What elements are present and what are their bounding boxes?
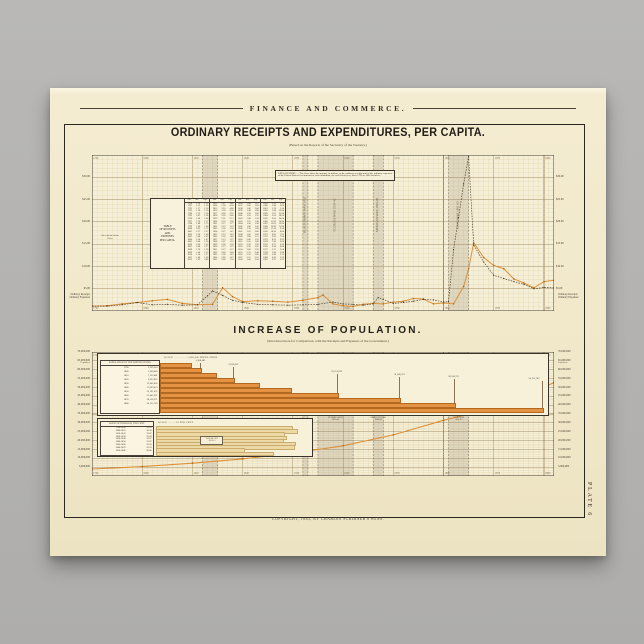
- leader-line: [200, 363, 201, 368]
- tick-label: 65,000,000Population: [558, 359, 604, 365]
- year-tick-label: 1810: [193, 157, 199, 160]
- ratio-table: RATIO OF INCREASE, PER CENT. 1790-180035…: [100, 421, 154, 456]
- population-table: POPULATION OF THE UNITED STATES. 17903,9…: [100, 360, 160, 414]
- year-tick-label: 1860: [445, 472, 451, 475]
- tick-label: 30,000,000: [558, 421, 604, 424]
- tick-label: $20.00: [556, 220, 596, 223]
- tick-label: 45,000,000: [558, 394, 604, 397]
- year-tick-label: 1820: [244, 157, 250, 160]
- leader-line: [399, 377, 400, 398]
- table-group: YearRec.Exp.18363.601.6718372.601.831838…: [235, 199, 260, 268]
- per-capita-y-axis-right: $30.00$25.00$20.00$15.00$10.00$5.00: [556, 155, 596, 311]
- table-group: YearRec.Exp.18131.473.4018141.504.501815…: [209, 199, 234, 268]
- page-title: ORDINARY RECEIPTS AND EXPENDITURES, PER …: [67, 127, 590, 139]
- year-tick-label: 1850: [394, 157, 400, 160]
- bar-scale-note: SCALE ·········· = 1,000,000 POPULATION.: [164, 356, 218, 359]
- leader-line: [542, 381, 543, 408]
- tick-label: $20.00: [54, 220, 90, 223]
- year-tick-label: 1800: [143, 157, 149, 160]
- tick-label: 10,000,000: [558, 456, 604, 459]
- tick-label: 40,000,000: [558, 403, 604, 406]
- tick-label: 70,000,000: [558, 350, 604, 353]
- tick-label: 10,000,000: [52, 456, 90, 459]
- year-tick-label: 1870: [495, 307, 501, 310]
- tick-label: 65,000,000Population: [52, 359, 90, 365]
- tick-label: 5,000,000: [52, 465, 90, 468]
- tick-label: $10.00: [556, 265, 596, 268]
- series-caption-expenses: Ordinary Expenses: [52, 296, 90, 299]
- tick-label: $5.00: [556, 287, 596, 290]
- year-tick-label: 1800: [143, 307, 149, 310]
- plate-number: PLATE 6: [586, 482, 592, 522]
- war-band-label: BLACK HAWK WAR 1832: [302, 196, 306, 233]
- tick-label: 50,000,000: [52, 386, 90, 389]
- tick-label: $15.00: [54, 242, 90, 245]
- poster-art: FINANCE AND COMMERCE. ORDINARY RECEIPTS …: [50, 88, 606, 556]
- population-y-axis-left: 70,000,00065,000,000Population60,000,000…: [52, 352, 90, 482]
- tick-label: $30.00: [556, 175, 596, 178]
- bar-value-label: 50,155,783: [521, 378, 547, 381]
- section-title: INCREASE OF POPULATION.: [50, 325, 606, 336]
- year-tick-label: 1800: [143, 472, 149, 475]
- year-tick-label: 1880: [545, 157, 551, 160]
- table-row: 188050,155,783: [101, 402, 159, 406]
- tick-label: $15.00: [556, 242, 596, 245]
- war-band-label: MEXICAN WAR 1846-48: [375, 198, 379, 233]
- indian-war-note: War with the Indian Tribes: [99, 235, 121, 240]
- tick-label: 55,000,000: [52, 377, 90, 380]
- running-head-rule-right: [413, 108, 576, 109]
- series-caption-expenses: Ordinary Expenses: [558, 296, 602, 299]
- tick-label: $30.00: [54, 175, 90, 178]
- tick-label: 50,000,000: [558, 386, 604, 389]
- tick-label: 25,000,000: [558, 430, 604, 433]
- year-tick-label: 1840: [344, 157, 350, 160]
- ratio-scale-note: SCALE ····· = 10 PER CENT.: [158, 421, 194, 424]
- table-row: 1870-188030.08: [101, 450, 153, 453]
- backdrop: FINANCE AND COMMERCE. ORDINARY RECEIPTS …: [0, 0, 644, 644]
- series-caption-left: Ordinary Receipts Ordinary Expenses: [52, 293, 90, 300]
- tick-label: 35,000,000: [52, 412, 90, 415]
- year-tick-label: 1880: [545, 307, 551, 310]
- tick-label: 60,000,000: [52, 368, 90, 371]
- war-band: [449, 155, 469, 311]
- year-tick-label: 1830: [294, 307, 300, 310]
- tick-label: 5,000,000: [558, 465, 604, 468]
- tick-label: 30,000,000: [52, 421, 90, 424]
- table-group: YearRec.Exp.18591.702.2518601.802.001861…: [260, 199, 285, 268]
- year-tick-label: 1810: [193, 307, 199, 310]
- leader-line: [454, 379, 455, 403]
- population-bar: [160, 408, 544, 413]
- year-tick-label: 1840: [344, 307, 350, 310]
- tick-label: $25.00: [556, 198, 596, 201]
- year-tick-label: 1860: [445, 307, 451, 310]
- tick-label: 40,000,000: [52, 403, 90, 406]
- tick-label: 70,000,000: [52, 350, 90, 353]
- table-group: YearRec.Exp.17901.101.1017911.131.101792…: [185, 199, 209, 268]
- tick-label: $5.00: [54, 287, 90, 290]
- year-tick-label: 1820: [244, 472, 250, 475]
- table-row: 18581.602.50: [236, 259, 260, 262]
- page-subtitle: (Based on the Reports of the Secretary o…: [50, 143, 606, 147]
- year-tick-label: 1790: [93, 472, 99, 475]
- tick-label: 20,000,000: [558, 439, 604, 442]
- running-head-text: FINANCE AND COMMERCE.: [250, 104, 406, 113]
- year-tick-label: 1870: [495, 472, 501, 475]
- year-tick-label: 1880: [545, 472, 551, 475]
- ratio-bar: [156, 452, 274, 456]
- running-head: FINANCE AND COMMERCE.: [80, 103, 576, 114]
- table-row: 18353.001.50: [210, 259, 234, 262]
- section-subtitle: (Introduced here for Comparison, with th…: [50, 339, 606, 343]
- tick-label: 45,000,000: [52, 394, 90, 397]
- tick-label: 55,000,000: [558, 377, 604, 380]
- series-caption-right: Ordinary Receipts Ordinary Expenses: [558, 293, 602, 300]
- war-band-label: FLORIDA WAR 1835-42: [333, 198, 337, 231]
- tick-label: 15,000,000: [52, 448, 90, 451]
- tick-label: 60,000,000: [558, 368, 604, 371]
- year-tick-label: 1820: [244, 307, 250, 310]
- ratio-table-rows: 1790-180035.101800-181036.381810-182033.…: [101, 427, 153, 453]
- year-tick-label: 1790: [93, 157, 99, 160]
- tick-label: 25,000,000: [52, 430, 90, 433]
- ratio-bars-panel: SCALE ····· = 10 PER CENT. RATIO OF INCR…: [97, 418, 313, 457]
- population-bars-panel: SCALE ·········· = 1,000,000 POPULATION.…: [97, 353, 549, 416]
- tick-label: 20,000,000: [52, 439, 90, 442]
- table-title: TABLEOF RECEIPTSANDEXPENSESPER CAPITA.: [151, 199, 185, 268]
- table-groups: YearRec.Exp.17901.101.1017911.131.101792…: [185, 199, 285, 268]
- tick-label: 15,000,000: [558, 448, 604, 451]
- running-head-rule-left: [80, 108, 243, 109]
- per-capita-y-axis-left: $30.00$25.00$20.00$15.00$10.00$5.00: [54, 155, 90, 311]
- year-tick-label: 1850: [394, 472, 400, 475]
- year-tick-label: 1830: [294, 472, 300, 475]
- explanation-box: EXPLANATION. — The lines show the amount…: [275, 170, 395, 181]
- per-capita-table: TABLEOF RECEIPTSANDEXPENSESPER CAPITA.Ye…: [150, 198, 286, 269]
- year-tick-label: 1830: [294, 157, 300, 160]
- population-y-axis-right: 70,000,00065,000,000Population60,000,000…: [558, 352, 604, 482]
- year-tick-label: 1860: [445, 157, 451, 160]
- tick-label: $10.00: [54, 265, 90, 268]
- tick-label: $25.00: [54, 198, 90, 201]
- leader-line: [233, 367, 234, 378]
- year-tick-label: 1870: [495, 157, 501, 160]
- year-tick-label: 1810: [193, 472, 199, 475]
- table-row: 18816.755.25: [261, 259, 285, 262]
- copyright-line: COPYRIGHT, 1883, BY CHARLES SCRIBNER'S S…: [50, 517, 606, 521]
- year-tick-label: 1850: [394, 307, 400, 310]
- tick-label: 35,000,000: [558, 412, 604, 415]
- leader-line: [337, 374, 338, 393]
- table-row: 18121.432.40: [185, 259, 209, 262]
- year-tick-label: 1790: [93, 307, 99, 310]
- year-tick-label: 1840: [344, 472, 350, 475]
- population-table-rows: 17903,929,21418005,308,48318107,239,8811…: [101, 366, 159, 406]
